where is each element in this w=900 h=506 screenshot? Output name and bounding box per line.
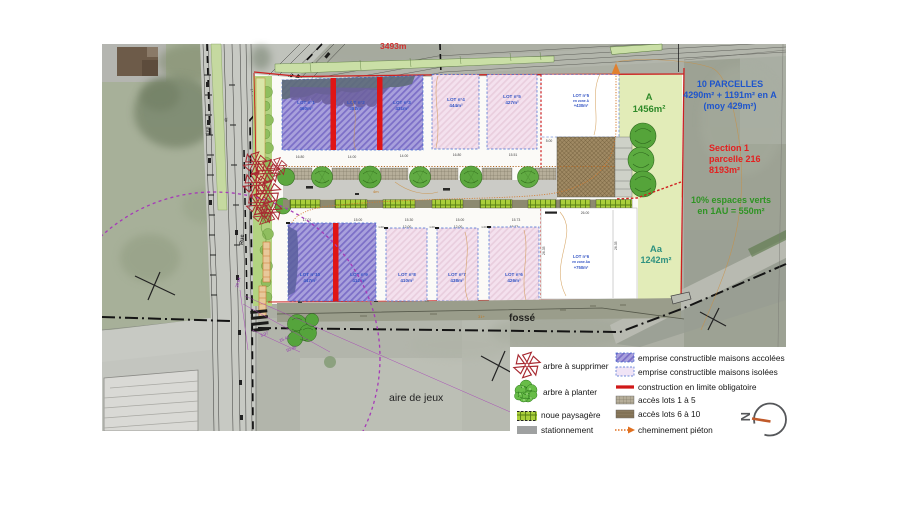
svg-text:LOT n°3: LOT n°3 (393, 100, 411, 105)
svg-text:3493m: 3493m (380, 41, 407, 51)
svg-text:Section 1: Section 1 (709, 143, 749, 153)
svg-text:431m²: 431m² (395, 106, 409, 111)
svg-text:LOT n°1: LOT n°1 (297, 100, 315, 105)
svg-text:410m²: 410m² (400, 278, 414, 283)
svg-text:arbre à planter: arbre à planter (543, 387, 597, 397)
svg-text:26.35: 26.35 (542, 246, 546, 255)
svg-text:26.00: 26.00 (581, 211, 590, 215)
svg-text:Rue: Rue (239, 234, 246, 245)
svg-text:LOT n°5: LOT n°5 (573, 93, 590, 98)
svg-text:444m²: 444m² (449, 103, 463, 108)
svg-text:LOT n°8: LOT n°8 (398, 272, 416, 277)
svg-text:1.00: 1.00 (378, 225, 384, 229)
svg-text:noue paysagère: noue paysagère (541, 410, 601, 420)
svg-text:construction en limite obligat: construction en limite obligatoire (638, 382, 757, 392)
svg-text:LOT n°5: LOT n°5 (503, 94, 521, 99)
svg-text:14.00: 14.00 (400, 154, 409, 158)
svg-text:arbre à supprimer: arbre à supprimer (543, 361, 609, 371)
svg-text:1242m²: 1242m² (640, 255, 671, 265)
svg-text:15.73: 15.73 (512, 218, 521, 222)
svg-text:fossé: fossé (509, 313, 536, 324)
svg-text:parcelle 216: parcelle 216 (709, 154, 761, 164)
svg-text:168: 168 (205, 126, 212, 135)
svg-text:5.00: 5.00 (546, 139, 553, 143)
svg-text:LOT n°6: LOT n°6 (505, 272, 523, 277)
svg-text:N: N (738, 412, 753, 421)
svg-text:+430m²: +430m² (574, 103, 589, 108)
svg-text:15.51: 15.51 (509, 153, 518, 157)
svg-text:1456m²: 1456m² (633, 104, 666, 115)
svg-text:426m²: 426m² (507, 278, 521, 283)
svg-text:31+: 31+ (478, 314, 485, 319)
svg-text:382m²: 382m² (349, 106, 363, 111)
svg-text:438m²: 438m² (450, 278, 464, 283)
svg-text:emprise constructible maisons: emprise constructible maisons isolées (638, 367, 778, 377)
svg-text:16.80: 16.80 (453, 153, 462, 157)
svg-text:(moy 429m²): (moy 429m²) (703, 101, 756, 111)
svg-text:15.00: 15.00 (354, 218, 363, 222)
svg-text:LOT n°2: LOT n°2 (347, 100, 365, 105)
svg-text:15.30: 15.30 (405, 218, 414, 222)
svg-text:A: A (646, 92, 653, 103)
svg-text:LOT n°10: LOT n°10 (300, 272, 321, 277)
svg-text:1.00: 1.00 (481, 225, 487, 229)
svg-text:LOT n°4: LOT n°4 (447, 97, 465, 102)
svg-text:LOT n°6: LOT n°6 (573, 254, 590, 259)
svg-text:cheminement piéton: cheminement piéton (638, 425, 713, 435)
svg-text:emprise constructible maisons: emprise constructible maisons accolées (638, 353, 785, 363)
svg-text:4290m² + 1191m² en A: 4290m² + 1191m² en A (683, 90, 777, 100)
svg-text:26.35: 26.35 (614, 241, 618, 250)
svg-text:en 1AU = 550m²: en 1AU = 550m² (697, 206, 764, 216)
svg-text:15.00: 15.00 (456, 218, 465, 222)
svg-text:14.00: 14.00 (348, 155, 357, 159)
svg-text:8193m²: 8193m² (709, 165, 740, 175)
svg-text:1.00: 1.00 (429, 225, 435, 229)
svg-text:16.80: 16.80 (296, 155, 305, 159)
svg-text:en zone Aa: en zone Aa (572, 260, 590, 264)
svg-text:LOT n°7: LOT n°7 (448, 272, 466, 277)
svg-text:427m²: 427m² (505, 100, 519, 105)
svg-text:accès lots 6 à 10: accès lots 6 à 10 (638, 409, 701, 419)
svg-text:10% espaces verts: 10% espaces verts (691, 195, 771, 205)
svg-text:447m²: 447m² (303, 278, 317, 283)
svg-text:10 PARCELLES: 10 PARCELLES (697, 79, 763, 89)
svg-text:+750m²: +750m² (574, 265, 589, 270)
svg-text:accès lots 1 à 5: accès lots 1 à 5 (638, 395, 696, 405)
svg-text:Aa: Aa (650, 244, 663, 255)
svg-text:stationnement: stationnement (541, 425, 594, 435)
svg-text:4m: 4m (373, 189, 379, 194)
svg-text:aire de jeux: aire de jeux (389, 392, 444, 404)
svg-text:460m²: 460m² (299, 106, 313, 111)
svg-text:412m²: 412m² (352, 278, 366, 283)
